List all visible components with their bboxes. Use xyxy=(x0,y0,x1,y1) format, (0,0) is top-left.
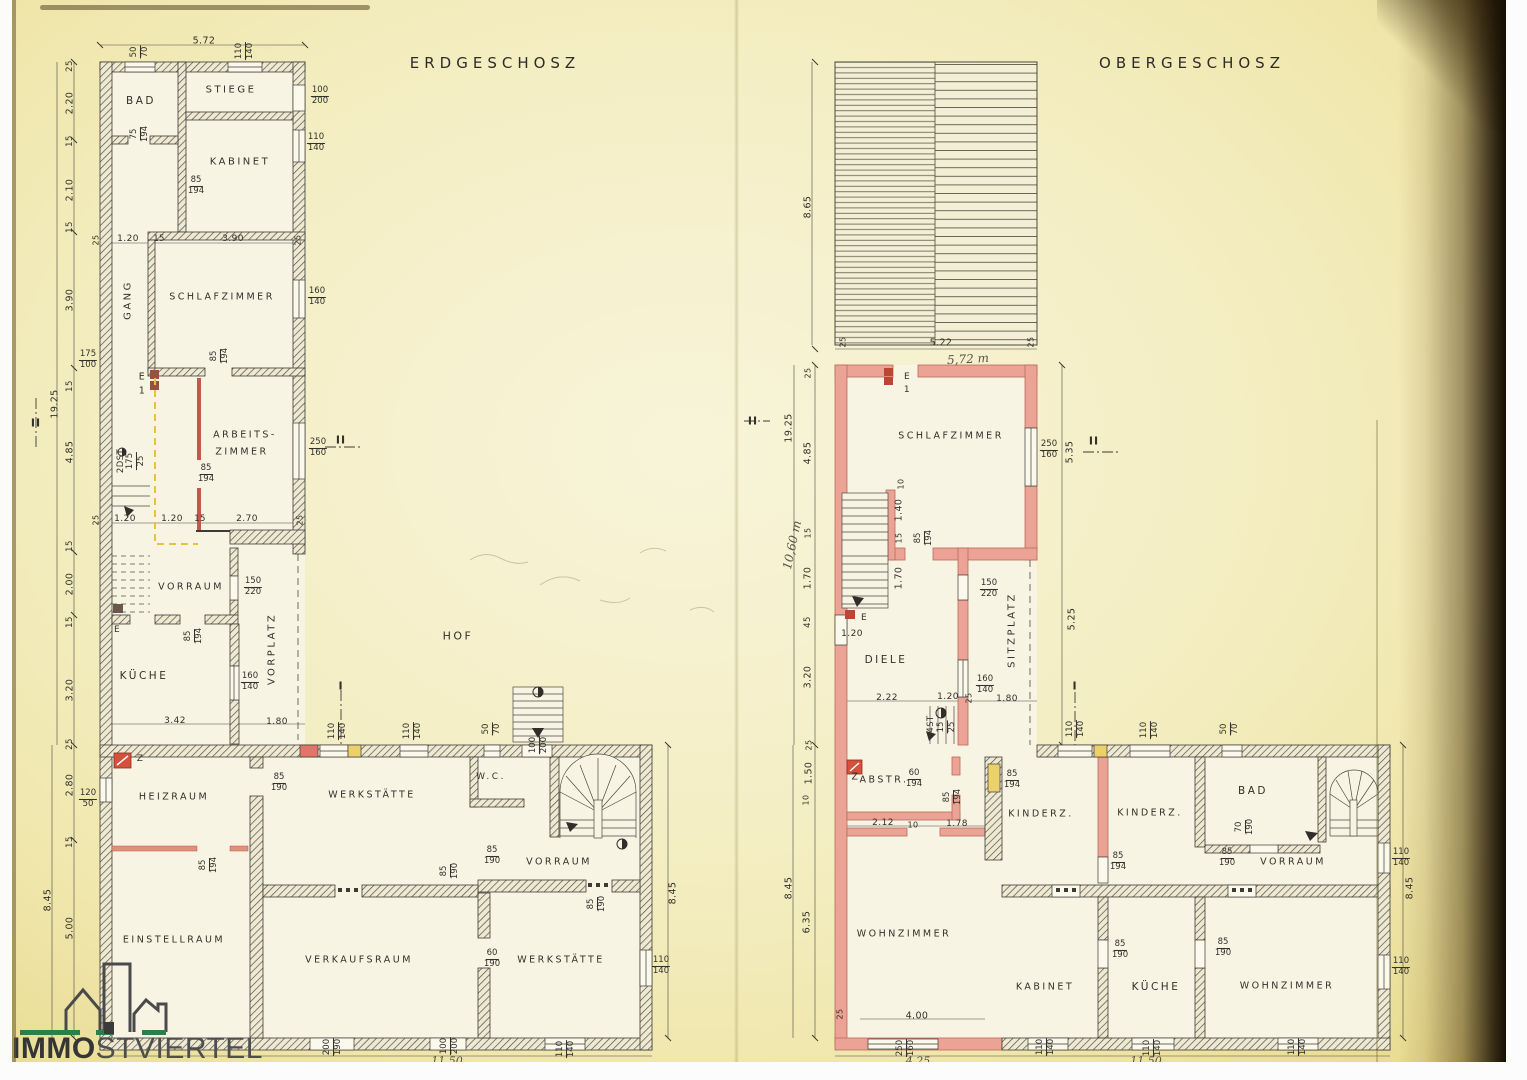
dimension-label: 15 xyxy=(65,836,75,848)
dimension-label: 19.25 xyxy=(784,413,795,442)
size-label: 160140 xyxy=(976,675,994,695)
size-label: 175100 xyxy=(79,350,97,370)
dimension-label: E xyxy=(861,613,867,623)
room-label: SCHLAFZIMMER xyxy=(169,292,275,303)
immostviertel-logo: IMMOSTVIERTEL xyxy=(8,948,248,1073)
size-label: 110140 xyxy=(1140,721,1160,739)
dimension-label: 25 xyxy=(65,738,75,750)
dimension-label: 8.65 xyxy=(803,196,814,219)
size-label: 75194 xyxy=(130,126,150,142)
size-label: 110140 xyxy=(1036,1038,1056,1056)
room-label: BAD xyxy=(126,95,156,107)
dimension-label: 15 xyxy=(65,540,75,552)
room-label: BAD xyxy=(1238,785,1268,797)
dimension-label: Z xyxy=(137,754,144,764)
dimension-label: 25 xyxy=(294,235,303,246)
dimension-label: 8.45 xyxy=(784,877,795,900)
room-label: SITZPLATZ xyxy=(1007,592,1018,668)
dimension-label: 25 xyxy=(1027,337,1036,348)
room-label: HEIZRAUM xyxy=(139,792,209,803)
dimension-label: 4.85 xyxy=(65,441,76,464)
section-mark: II xyxy=(1089,435,1099,448)
size-label: 85194 xyxy=(914,530,934,546)
size-label: 250160 xyxy=(309,438,327,458)
size-label: 5070 xyxy=(482,723,502,736)
paper-edge-top xyxy=(40,5,370,10)
dimension-label: 1 xyxy=(139,386,145,397)
section-mark: I xyxy=(1072,680,1077,693)
dimension-label: 2.80 xyxy=(65,774,76,797)
size-label: 100200 xyxy=(311,86,329,106)
size-label: 85194 xyxy=(188,176,204,196)
room-label: VORRAUM xyxy=(158,582,224,593)
dimension-label: 25 xyxy=(836,1009,845,1020)
dimension-label: 10 xyxy=(908,821,919,830)
size-label: 5070 xyxy=(1220,723,1240,736)
dimension-label: 15 xyxy=(65,221,75,233)
dimension-label: 5.72 xyxy=(193,36,216,47)
size-label: 85190 xyxy=(1219,848,1235,868)
section-mark: II xyxy=(336,434,346,447)
size-label: 1525 xyxy=(937,721,957,734)
room-label: HOF xyxy=(443,630,474,643)
room-label: WOHNZIMMER xyxy=(857,929,951,940)
dimension-label: 3.90 xyxy=(65,289,76,312)
size-label: 85194 xyxy=(198,464,214,484)
logo-skyline-icon xyxy=(8,948,248,1038)
section-mark: II xyxy=(748,415,758,428)
room-label: KABINET xyxy=(210,157,270,168)
dimension-label: 25 xyxy=(805,740,814,751)
floor-title: ERDGESCHOSZ xyxy=(410,54,580,72)
dimension-label: 15 xyxy=(804,528,813,539)
room-label: WOHNZIMMER xyxy=(1240,981,1334,992)
room-label: EINSTELLRAUM xyxy=(123,935,225,946)
dimension-label: 2.00 xyxy=(65,573,76,596)
dimension-label: 1.70 xyxy=(803,567,814,590)
handwritten-note: 5,72 m xyxy=(947,351,990,367)
dimension-label: 3.90 xyxy=(222,234,244,244)
dimension-label: 1.20 xyxy=(841,629,863,639)
dimension-label: 5.35 xyxy=(1065,441,1076,464)
room-label: VORPLATZ xyxy=(267,613,278,685)
floor-title: OBERGESCHOSZ xyxy=(1099,54,1285,72)
size-label: 85194 xyxy=(943,789,963,805)
size-label: 85194 xyxy=(210,348,230,364)
size-label: 85190 xyxy=(1215,938,1231,958)
room-label: KÜCHE xyxy=(120,670,169,682)
dimension-label: 4.85 xyxy=(803,442,814,465)
size-label: 110140 xyxy=(1288,1038,1308,1056)
size-label: 160140 xyxy=(241,672,259,692)
room-label: ARBEITS- xyxy=(213,430,277,441)
room-label: WERKSTÄTTE xyxy=(328,790,416,801)
dimension-label: 25 xyxy=(92,515,101,526)
size-label: 12050 xyxy=(79,789,97,809)
dimension-label: 3.42 xyxy=(164,716,186,726)
logo-text-bold: IMMO xyxy=(12,1032,96,1065)
labels-layer: ERDGESCHOSZOBERGESCHOSZ50705.72110140252… xyxy=(0,0,1527,1080)
size-label: 85190 xyxy=(1112,940,1128,960)
dimension-label: 25 xyxy=(92,235,101,246)
room-label: WERKSTÄTTE xyxy=(517,955,605,966)
dimension-label: 1.20 xyxy=(114,514,136,524)
room-label: GANG xyxy=(123,280,134,320)
logo-text: IMMOSTVIERTEL xyxy=(12,1032,263,1066)
logo-text-light: STVIERTEL xyxy=(96,1032,263,1065)
dimension-label: 8.45 xyxy=(668,882,679,905)
room-label: KABINET xyxy=(1016,982,1074,993)
dimension-label: 15 xyxy=(65,380,75,392)
size-label: 110140 xyxy=(328,722,348,740)
size-label: 110140 xyxy=(1066,720,1086,738)
dimension-label: 1.20 xyxy=(937,692,959,702)
page-curl-shadow xyxy=(1398,0,1506,1062)
room-label: VORRAUM xyxy=(526,857,592,868)
size-label: 60194 xyxy=(906,769,922,789)
dimension-label: 1.80 xyxy=(996,694,1018,704)
size-label: 110140 xyxy=(403,722,423,740)
dimension-label: 15 xyxy=(194,514,206,524)
size-label: 17525 xyxy=(126,452,146,470)
size-label: 85190 xyxy=(440,863,460,879)
dimension-label: 15 xyxy=(65,616,75,628)
dimension-label: 5.22 xyxy=(930,338,953,349)
room-label: KINDERZ. xyxy=(1008,809,1074,820)
dimension-label: 3.20 xyxy=(65,679,76,702)
size-label: 85190 xyxy=(271,773,287,793)
size-label: 85190 xyxy=(587,896,607,912)
paper-edge-left xyxy=(12,0,16,1064)
size-label: 110140 xyxy=(556,1040,576,1058)
dimension-label: 2.12 xyxy=(872,818,894,828)
dimension-label: 25 xyxy=(65,60,75,72)
room-label: ABSTR. xyxy=(860,775,909,786)
size-label: 70190 xyxy=(1235,819,1255,835)
dimension-label: 3.20 xyxy=(803,666,814,689)
fold-line xyxy=(1376,420,1378,1062)
room-label: KINDERZ. xyxy=(1117,808,1183,819)
size-label: 85190 xyxy=(484,846,500,866)
dimension-label: 4ST xyxy=(926,715,936,732)
room-label: STIEGE xyxy=(206,85,257,96)
dimension-label: E xyxy=(114,625,120,635)
handwritten-note: 10,60 m xyxy=(780,519,804,570)
size-label: 110140 xyxy=(307,133,325,153)
dimension-label: 1.40 xyxy=(894,499,905,522)
size-label: 110140 xyxy=(652,956,670,976)
dimension-label: 25 xyxy=(965,693,974,704)
dimension-label: E xyxy=(139,372,145,383)
dimension-label: 2.70 xyxy=(236,514,258,524)
scan-edge-left xyxy=(0,0,12,1080)
section-mark: II xyxy=(31,417,41,430)
size-label: 110140 xyxy=(235,42,255,60)
dimension-label: 15 xyxy=(153,234,165,244)
room-label: VERKAUFSRAUM xyxy=(305,955,413,966)
size-label: 85194 xyxy=(184,628,204,644)
size-label: 85194 xyxy=(1110,852,1126,872)
dimension-label: 4.00 xyxy=(906,1011,929,1022)
size-label: 160140 xyxy=(308,287,326,307)
dimension-label: 8.45 xyxy=(43,889,54,912)
dimension-label: 10 xyxy=(897,479,906,490)
dimension-label: 1 xyxy=(904,385,910,395)
dimension-label: Z xyxy=(852,772,859,783)
size-label: 250160 xyxy=(1040,440,1058,460)
size-label: 5070 xyxy=(130,46,150,59)
dimension-label: 1.50 xyxy=(804,762,815,785)
size-label: 150220 xyxy=(244,577,262,597)
dimension-label: 1.78 xyxy=(946,819,968,829)
dimension-label: 2.22 xyxy=(876,693,898,703)
dimension-label: 25 xyxy=(839,337,848,348)
size-label: 85194 xyxy=(199,857,219,873)
scan-edge-right xyxy=(1506,0,1527,1080)
dimension-label: 2.20 xyxy=(65,92,76,115)
scan-edge-bottom xyxy=(0,1062,1527,1080)
dimension-label: 1.20 xyxy=(161,514,183,524)
floor-plan-scan: ERDGESCHOSZOBERGESCHOSZ50705.72110140252… xyxy=(0,0,1527,1080)
size-label: 60190 xyxy=(484,949,500,969)
room-label: SCHLAFZIMMER xyxy=(898,431,1004,442)
dimension-label: E xyxy=(904,372,910,382)
room-label: VORRAUM xyxy=(1260,857,1326,868)
room-label: ZIMMER xyxy=(215,447,268,458)
dimension-label: 1.20 xyxy=(117,234,139,244)
room-label: W.C. xyxy=(476,772,506,782)
dimension-label: 15 xyxy=(895,533,904,544)
size-label: 85194 xyxy=(1004,770,1020,790)
dimension-label: 25 xyxy=(804,368,813,379)
dimension-label: 5.25 xyxy=(1067,608,1078,631)
room-label: DIELE xyxy=(865,654,908,666)
dimension-label: 10 xyxy=(802,795,811,806)
dimension-label: 1.70 xyxy=(894,567,905,590)
dimension-label: 15 xyxy=(65,135,75,147)
size-label: 100200 xyxy=(529,736,549,754)
size-label: 200190 xyxy=(323,1038,343,1056)
dimension-label: 5.00 xyxy=(65,917,76,940)
dimension-label: 45 xyxy=(803,616,813,628)
section-mark: I xyxy=(338,680,343,693)
room-label: KÜCHE xyxy=(1132,981,1181,993)
dimension-label: 2.10 xyxy=(65,179,76,202)
dimension-label: 19.25 xyxy=(50,389,61,418)
dimension-label: 1.80 xyxy=(266,717,288,727)
dimension-label: 6.35 xyxy=(802,911,813,934)
dimension-label: 25 xyxy=(296,515,305,526)
size-label: 100200 xyxy=(440,1037,460,1055)
size-label: 150220 xyxy=(980,579,998,599)
